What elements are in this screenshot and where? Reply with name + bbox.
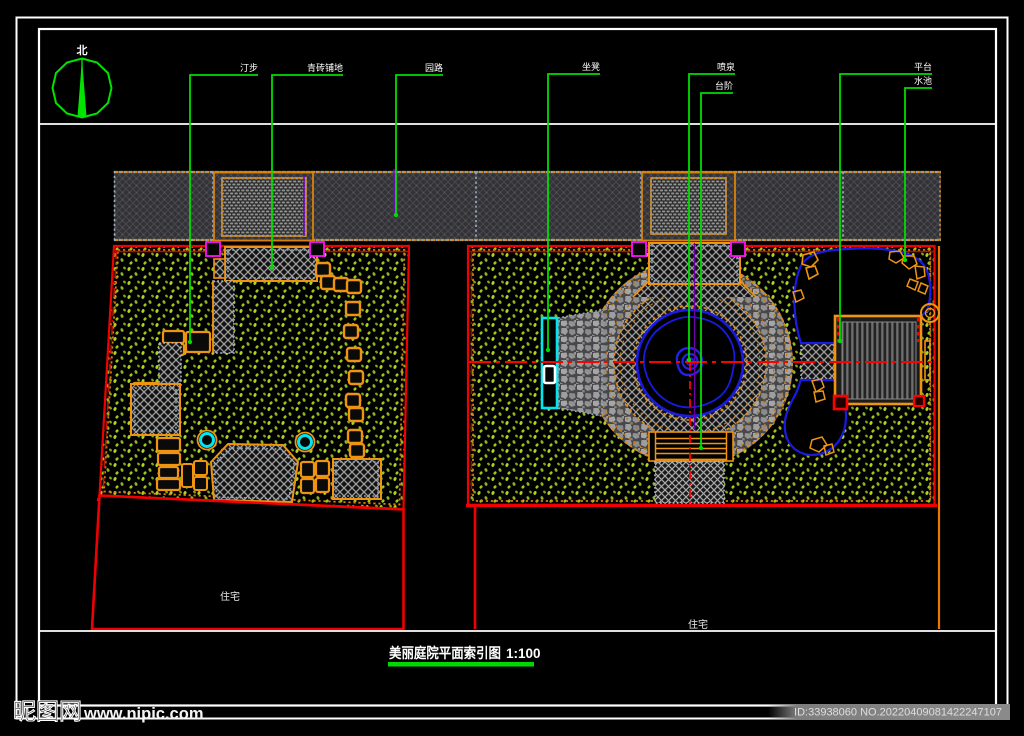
svg-text:ID:33938060 NO.202204090814222: ID:33938060 NO.20220409081422247107: [794, 707, 1002, 719]
svg-text:住宅: 住宅: [688, 618, 708, 631]
svg-text:水池: 水池: [914, 75, 932, 86]
svg-text:北: 北: [77, 43, 88, 57]
svg-text:美丽庭院平面索引图: 美丽庭院平面索引图: [389, 645, 501, 661]
svg-text:1:100: 1:100: [506, 646, 541, 661]
svg-text:台阶: 台阶: [715, 80, 733, 91]
svg-text:平台: 平台: [914, 61, 932, 72]
svg-text:喷泉: 喷泉: [717, 61, 735, 72]
svg-text:www.nipic.com: www.nipic.com: [83, 705, 204, 723]
svg-text:园路: 园路: [425, 62, 443, 73]
svg-text:坐凳: 坐凳: [582, 62, 600, 72]
svg-text:青砖铺地: 青砖铺地: [307, 62, 343, 73]
svg-text:汀步: 汀步: [240, 63, 258, 73]
svg-text:昵图网: 昵图网: [13, 698, 82, 724]
svg-text:住宅: 住宅: [220, 590, 240, 603]
